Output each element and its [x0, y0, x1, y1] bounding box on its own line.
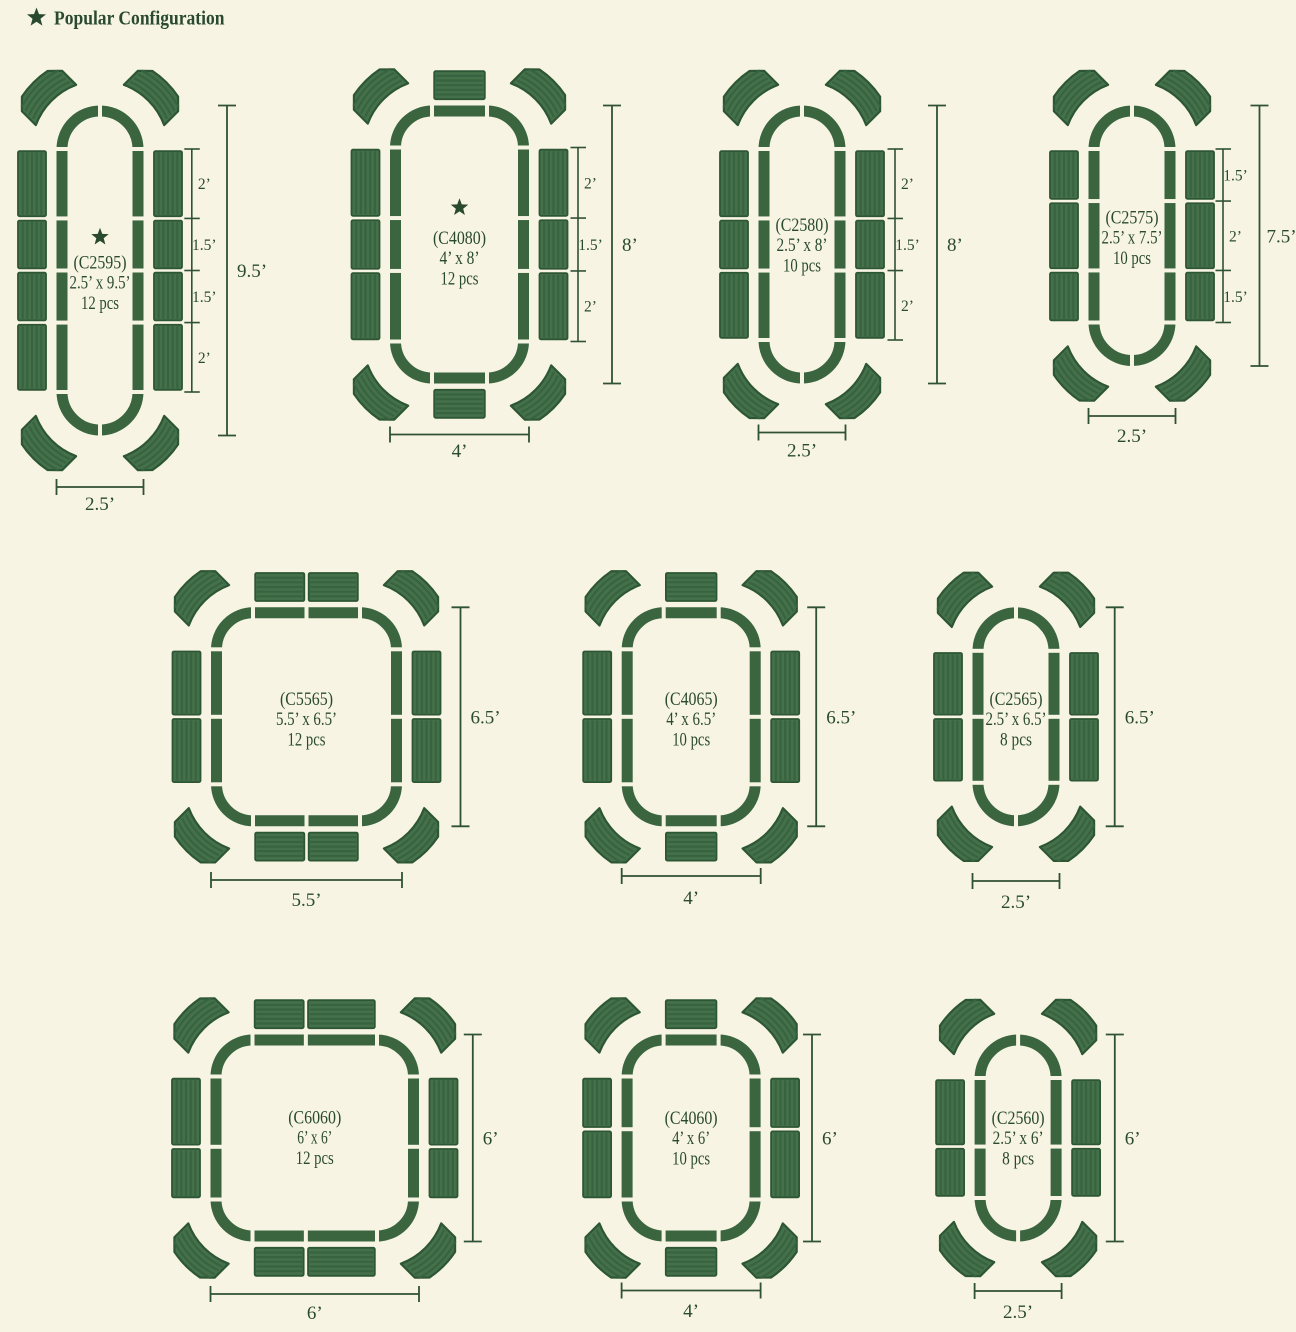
svg-text:6.5’: 6.5’	[826, 707, 856, 728]
svg-text:1.5’: 1.5’	[1223, 289, 1248, 306]
svg-text:(C2565): (C2565)	[990, 689, 1043, 710]
svg-text:2’: 2’	[1229, 228, 1242, 245]
svg-text:12 pcs: 12 pcs	[81, 293, 119, 314]
svg-text:6’ x 6’: 6’ x 6’	[297, 1128, 332, 1149]
svg-text:Popular Configuration: Popular Configuration	[54, 8, 225, 30]
svg-text:1.5’: 1.5’	[895, 237, 920, 254]
svg-text:2’: 2’	[901, 298, 914, 315]
svg-text:2.5’: 2.5’	[85, 494, 115, 515]
svg-text:12 pcs: 12 pcs	[296, 1148, 334, 1169]
svg-text:1.5’: 1.5’	[192, 237, 217, 254]
svg-text:4’: 4’	[683, 1301, 699, 1322]
svg-text:8’: 8’	[622, 235, 638, 256]
svg-text:6.5’: 6.5’	[471, 707, 501, 728]
svg-text:4’: 4’	[683, 888, 699, 909]
svg-text:2.5’ x 9.5’: 2.5’ x 9.5’	[70, 273, 131, 294]
svg-text:7.5’: 7.5’	[1267, 226, 1296, 247]
svg-text:6.5’: 6.5’	[1125, 707, 1155, 728]
svg-text:2.5’: 2.5’	[1003, 1302, 1033, 1323]
svg-text:2’: 2’	[901, 176, 914, 193]
svg-text:1.5’: 1.5’	[192, 289, 217, 306]
svg-text:2.5’: 2.5’	[787, 441, 817, 462]
svg-text:4’ x 8’: 4’ x 8’	[440, 248, 480, 269]
svg-text:8 pcs: 8 pcs	[1000, 729, 1032, 750]
svg-text:10 pcs: 10 pcs	[672, 729, 710, 750]
svg-text:4’ x 6.5’: 4’ x 6.5’	[666, 709, 716, 730]
svg-text:6’: 6’	[483, 1129, 499, 1150]
svg-text:5.5’: 5.5’	[291, 890, 321, 911]
svg-text:2’: 2’	[584, 175, 597, 192]
svg-text:(C2575): (C2575)	[1106, 208, 1159, 229]
svg-text:2.5’ x 6’: 2.5’ x 6’	[993, 1128, 1044, 1149]
svg-text:2.5’ x 6.5’: 2.5’ x 6.5’	[986, 709, 1047, 730]
svg-text:8’: 8’	[947, 235, 963, 256]
svg-text:(C4065): (C4065)	[665, 689, 718, 710]
svg-text:(C2560): (C2560)	[992, 1108, 1045, 1129]
svg-text:6’: 6’	[822, 1129, 838, 1150]
svg-text:(C4060): (C4060)	[665, 1108, 718, 1129]
svg-text:6’: 6’	[307, 1303, 323, 1324]
svg-text:2.5’: 2.5’	[1117, 426, 1147, 447]
svg-text:10 pcs: 10 pcs	[672, 1148, 710, 1169]
svg-text:(C2580): (C2580)	[776, 215, 829, 236]
svg-text:(C4080): (C4080)	[433, 228, 486, 249]
svg-text:8 pcs: 8 pcs	[1002, 1148, 1034, 1169]
svg-text:10 pcs: 10 pcs	[1113, 248, 1151, 269]
svg-text:4’: 4’	[452, 441, 468, 462]
svg-text:2.5’ x 7.5’: 2.5’ x 7.5’	[1102, 228, 1163, 249]
svg-text:(C2595): (C2595)	[74, 253, 127, 274]
svg-text:1.5’: 1.5’	[1223, 168, 1248, 185]
svg-text:2’: 2’	[584, 299, 597, 316]
svg-text:9.5’: 9.5’	[237, 261, 267, 282]
svg-text:2’: 2’	[198, 350, 211, 367]
svg-text:4’ x 6’: 4’ x 6’	[672, 1128, 710, 1149]
svg-text:1.5’: 1.5’	[578, 237, 603, 254]
svg-text:(C5565): (C5565)	[280, 689, 333, 710]
svg-text:10 pcs: 10 pcs	[783, 255, 821, 276]
svg-text:6’: 6’	[1125, 1129, 1141, 1150]
svg-text:2.5’ x 8’: 2.5’ x 8’	[777, 235, 828, 256]
svg-text:2.5’: 2.5’	[1001, 892, 1031, 913]
svg-text:2’: 2’	[198, 176, 211, 193]
svg-text:(C6060): (C6060)	[288, 1108, 341, 1129]
svg-text:12 pcs: 12 pcs	[441, 268, 479, 289]
svg-text:12 pcs: 12 pcs	[288, 729, 326, 750]
svg-text:5.5’ x 6.5’: 5.5’ x 6.5’	[276, 709, 337, 730]
